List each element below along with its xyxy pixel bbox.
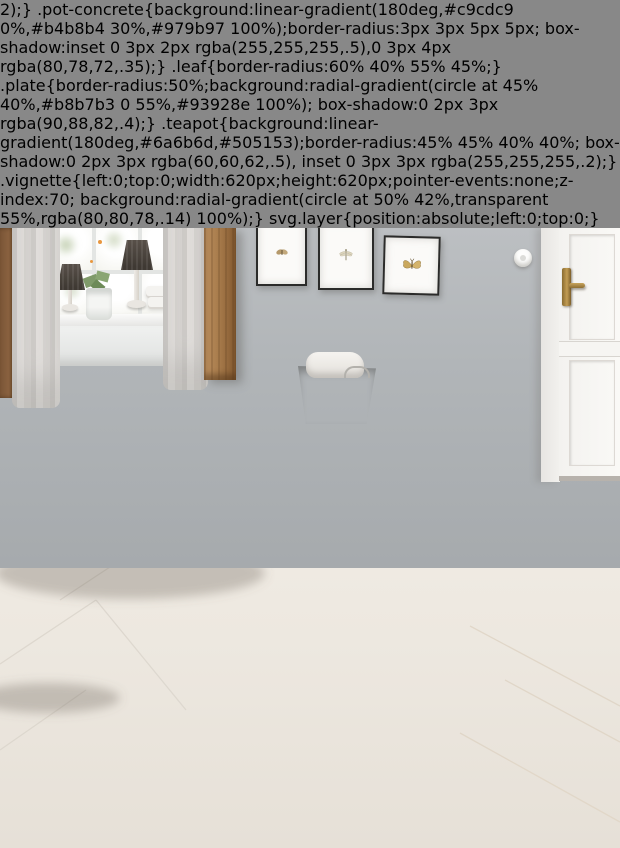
butterfly-icon xyxy=(400,254,423,277)
wood-beam xyxy=(204,228,236,380)
door-rail xyxy=(559,342,620,356)
basket-handle xyxy=(344,366,370,378)
flower-dot xyxy=(98,240,102,244)
dragonfly-icon xyxy=(338,247,354,263)
door-frame xyxy=(541,228,560,482)
wall-art-frame-2 xyxy=(318,228,374,290)
foliage-outside xyxy=(102,230,126,250)
curtain-left xyxy=(12,228,60,408)
living-room-product-photo xyxy=(0,228,620,848)
door-threshold xyxy=(559,476,620,481)
doorbell xyxy=(514,249,532,267)
wood-grain xyxy=(204,228,236,380)
door xyxy=(559,228,620,478)
lamp-right-stem xyxy=(134,270,139,302)
lamp-right-base xyxy=(127,300,146,308)
sill-plant-pot xyxy=(86,288,112,320)
flower-dot xyxy=(90,260,93,263)
moth-icon xyxy=(275,245,289,259)
lamp-left-base xyxy=(62,304,78,311)
wall-art-frame-1 xyxy=(256,228,307,286)
door-panel-lower xyxy=(569,360,615,466)
wall-art-frame-3 xyxy=(382,235,441,295)
door-handle xyxy=(569,283,585,288)
curtain-right xyxy=(163,228,208,390)
